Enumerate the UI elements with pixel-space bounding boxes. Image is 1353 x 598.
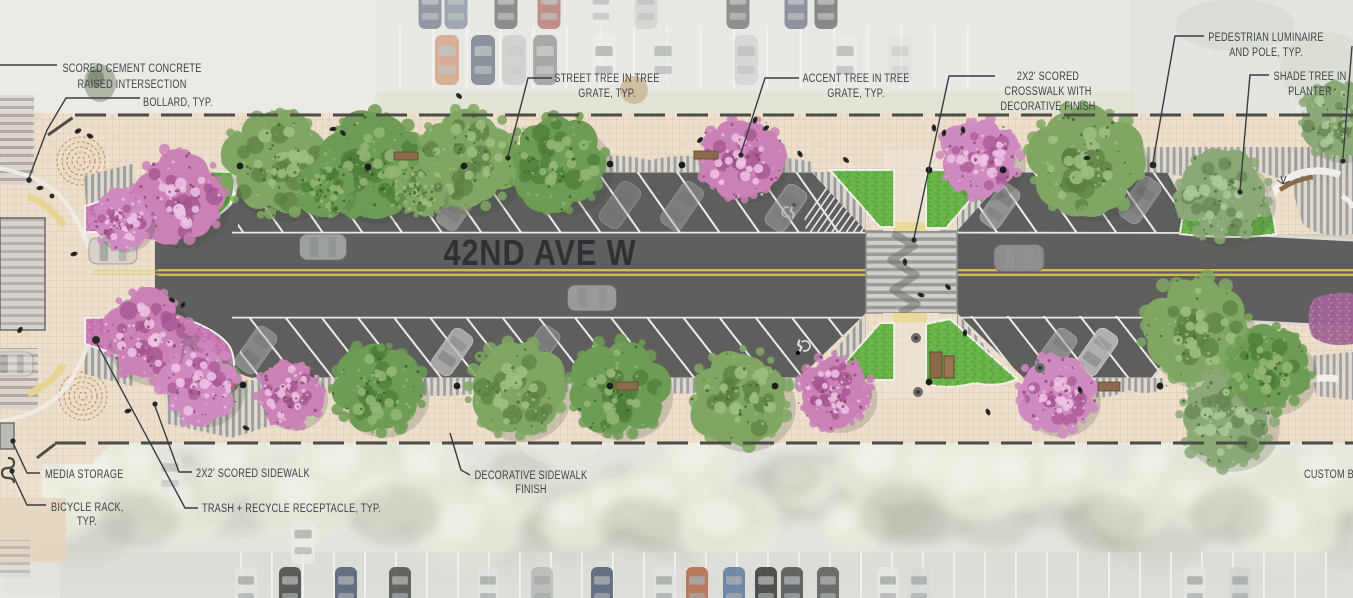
svg-text:PEDESTRIAN LUMINAIRE: PEDESTRIAN LUMINAIRE [1208, 31, 1323, 45]
svg-text:CUSTOM BEN: CUSTOM BEN [1304, 468, 1353, 482]
svg-text:GRATE, TYP.: GRATE, TYP. [827, 87, 884, 101]
svg-text:SHADE TREE IN: SHADE TREE IN [1274, 70, 1347, 84]
svg-text:MEDIA STORAGE: MEDIA STORAGE [45, 468, 124, 482]
svg-text:TRASH + RECYCLE RECEPTACLE, TY: TRASH + RECYCLE RECEPTACLE, TYP. [202, 502, 381, 516]
svg-text:DECORATIVE SIDEWALK: DECORATIVE SIDEWALK [475, 469, 588, 483]
svg-text:GRATE, TYP.: GRATE, TYP. [578, 87, 635, 101]
svg-text:STREET TREE IN TREE: STREET TREE IN TREE [554, 72, 660, 86]
svg-text:DECORATIVE FINISH: DECORATIVE FINISH [1000, 100, 1095, 114]
svg-text:BOLLARD, TYP.: BOLLARD, TYP. [143, 96, 213, 110]
svg-text:RAISED INTERSECTION: RAISED INTERSECTION [77, 78, 186, 92]
svg-text:FINISH: FINISH [515, 483, 546, 497]
svg-text:42ND AVE W: 42ND AVE W [444, 232, 637, 273]
svg-text:2X2' SCORED: 2X2' SCORED [1017, 70, 1079, 84]
svg-text:TYP.: TYP. [77, 515, 97, 529]
svg-text:2X2' SCORED SIDEWALK: 2X2' SCORED SIDEWALK [196, 467, 310, 481]
svg-text:PLANTER: PLANTER [1288, 85, 1332, 99]
svg-text:BICYCLE RACK,: BICYCLE RACK, [51, 501, 124, 515]
svg-text:CROSSWALK WITH: CROSSWALK WITH [1004, 85, 1091, 99]
svg-text:AND POLE, TYP.: AND POLE, TYP. [1229, 46, 1303, 60]
svg-text:ACCENT TREE IN TREE: ACCENT TREE IN TREE [802, 72, 909, 86]
svg-text:SCORED CEMENT CONCRETE: SCORED CEMENT CONCRETE [62, 62, 201, 76]
